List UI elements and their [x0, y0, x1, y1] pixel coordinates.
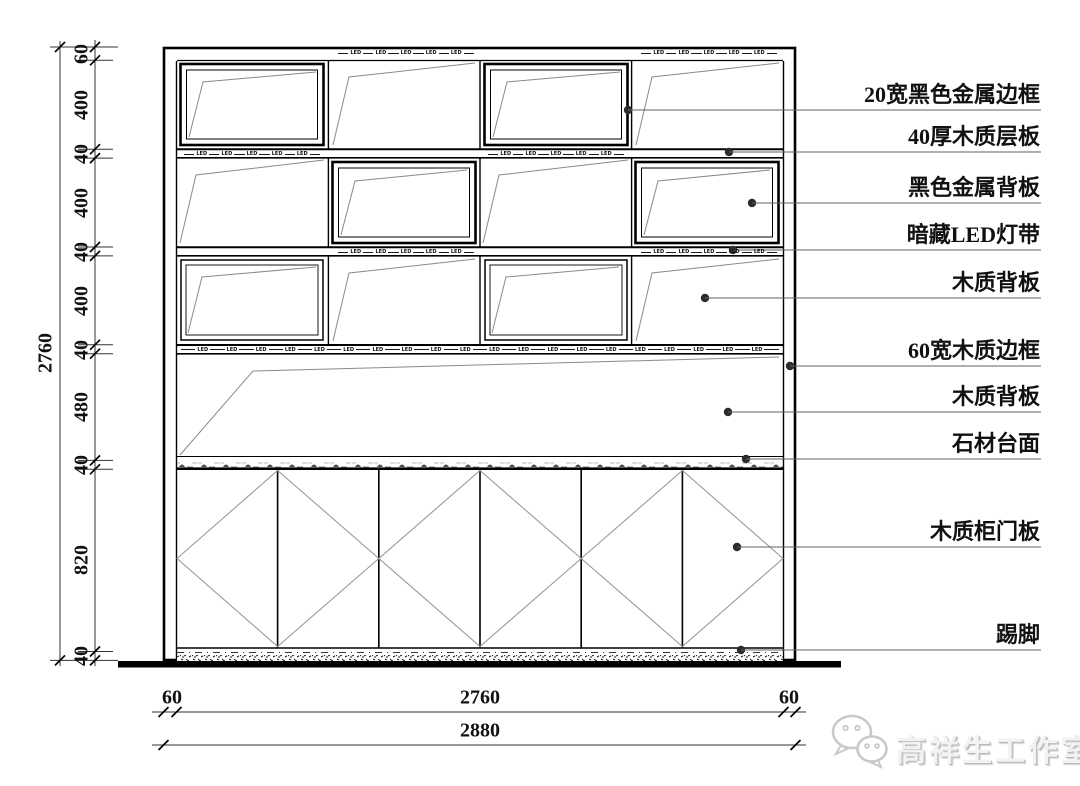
- dim-left-seg: 40: [71, 242, 94, 262]
- callout-metal-back-panel: 黑色金属背板: [908, 175, 1040, 201]
- callout-wood-edge-frame: 60宽木质边框: [908, 338, 1040, 364]
- cabinet-doors: [177, 470, 783, 649]
- dim-left-seg: 480: [71, 392, 94, 422]
- dimension-ticks: [55, 42, 801, 750]
- led-strip: LEDLEDLEDLEDLED: [336, 248, 476, 256]
- dim-left-total: 2760: [35, 333, 58, 373]
- callout-stone-countertop: 石材台面: [952, 431, 1040, 457]
- dim-bottom-right-60: 60: [779, 687, 799, 710]
- callout-wood-back-panel-1: 木质背板: [952, 270, 1040, 296]
- dim-left-seg: 60: [71, 44, 94, 64]
- ground-line: [118, 661, 841, 668]
- wechat-bubbles-icon: [830, 712, 890, 770]
- led-strip: LEDLEDLEDLEDLED: [639, 248, 779, 256]
- led-strip: LEDLEDLEDLEDLED: [486, 150, 626, 158]
- kick-plinth: [118, 653, 841, 668]
- stone-countertop: [177, 457, 783, 469]
- dim-bottom-2760: 2760: [460, 687, 500, 710]
- dim-bottom-left-60: 60: [162, 687, 182, 710]
- dim-left-seg: 820: [71, 545, 94, 575]
- dim-left-seg: 400: [71, 90, 94, 120]
- callout-hidden-led-strip: 暗藏LED灯带: [907, 222, 1040, 248]
- callout-kick: 踢脚: [996, 622, 1040, 648]
- elevation-linework: [0, 0, 1080, 786]
- callout-wood-shelf: 40厚木质层板: [908, 124, 1040, 150]
- bay-dividers: [328, 61, 631, 345]
- led-strip: LEDLEDLEDLEDLEDLEDLEDLEDLEDLEDLEDLEDLEDL…: [179, 346, 781, 354]
- callout-wood-back-panel-2: 木质背板: [952, 384, 1040, 410]
- dim-left-seg: 40: [71, 455, 94, 475]
- dim-left-seg: 400: [71, 188, 94, 218]
- watermark-studio-name: 高祥生工作室: [896, 726, 1080, 770]
- dim-left-seg: 40: [71, 340, 94, 360]
- dim-left-seg: 40: [71, 646, 94, 666]
- dim-left-seg: 40: [71, 144, 94, 164]
- led-strip: LEDLEDLEDLEDLED: [639, 49, 779, 57]
- elevation-drawing-page: LEDLEDLEDLEDLED LEDLEDLEDLEDLED LEDLEDLE…: [0, 0, 1080, 786]
- dim-left-seg: 400: [71, 286, 94, 316]
- led-strip: LEDLEDLEDLEDLED: [182, 150, 322, 158]
- callout-wood-door-panel: 木质柜门板: [930, 519, 1040, 545]
- led-strip: LEDLEDLEDLEDLED: [336, 49, 476, 57]
- callout-metal-edge-frame: 20宽黑色金属边框: [864, 82, 1040, 108]
- dim-bottom-overall: 2880: [460, 720, 500, 743]
